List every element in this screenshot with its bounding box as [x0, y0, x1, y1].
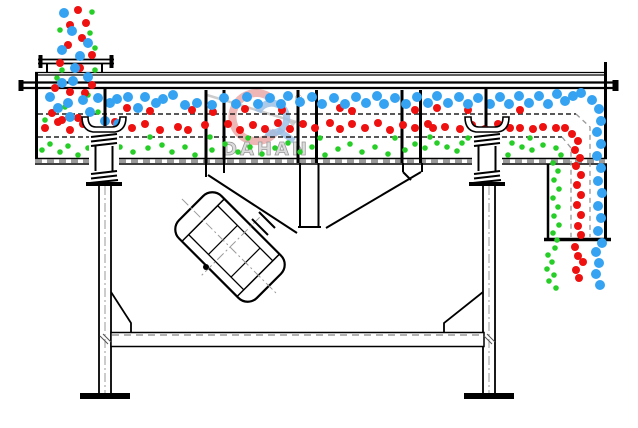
- hopper-right-diagonal: [326, 172, 421, 228]
- red-particle: [529, 125, 537, 133]
- blue-particle: [454, 92, 464, 102]
- blue-particle: [276, 99, 286, 109]
- green-particle: [552, 245, 558, 251]
- green-particle: [317, 135, 323, 141]
- blue-particle: [75, 51, 85, 61]
- cross-beam: [100, 333, 495, 347]
- red-particle: [201, 121, 209, 129]
- right-foot-pad: [464, 393, 514, 399]
- red-particle: [433, 104, 441, 112]
- blue-particle: [283, 91, 293, 101]
- green-particle: [554, 237, 560, 243]
- blue-particle: [265, 93, 275, 103]
- blue-particle: [423, 98, 433, 108]
- red-particle: [299, 120, 307, 128]
- green-particle: [385, 151, 391, 157]
- blue-particle: [504, 99, 514, 109]
- red-particle: [429, 124, 437, 132]
- green-particle: [57, 27, 63, 33]
- blue-particle: [133, 103, 143, 113]
- blue-particle: [351, 92, 361, 102]
- blue-particle: [432, 91, 442, 101]
- blue-particle: [596, 163, 606, 173]
- blue-particle: [596, 213, 606, 223]
- blue-particle: [595, 280, 605, 290]
- red-particle: [123, 104, 131, 112]
- blue-particle: [78, 95, 88, 105]
- green-particle: [245, 135, 251, 141]
- red-particle: [88, 81, 96, 89]
- green-particle: [57, 149, 63, 155]
- green-particle: [247, 144, 253, 150]
- green-particle: [465, 135, 471, 141]
- red-particle: [441, 123, 449, 131]
- green-particle: [87, 30, 93, 36]
- green-particle: [309, 144, 315, 150]
- red-particle: [146, 107, 154, 115]
- green-particle: [259, 151, 265, 157]
- red-particle: [577, 191, 585, 199]
- blue-particle: [70, 63, 80, 73]
- red-particle: [66, 88, 74, 96]
- green-particle: [551, 177, 557, 183]
- red-particle: [573, 181, 581, 189]
- green-particle: [553, 145, 559, 151]
- blue-particle: [534, 91, 544, 101]
- blue-particle: [83, 38, 93, 48]
- green-particle: [272, 145, 278, 151]
- blue-particle: [207, 100, 217, 110]
- green-particle: [75, 152, 81, 158]
- red-particle: [184, 126, 192, 134]
- green-particle: [427, 134, 433, 140]
- green-particle: [147, 134, 153, 140]
- blue-particle: [219, 93, 229, 103]
- blue-particle: [390, 93, 400, 103]
- left-leg: [80, 186, 130, 399]
- red-particle: [361, 124, 369, 132]
- red-channel-divider: [562, 137, 571, 237]
- green-particle: [422, 145, 428, 151]
- green-particle: [92, 45, 98, 51]
- diagram-canvas: ® DAHAN: [0, 0, 638, 428]
- green-particle: [322, 152, 328, 158]
- vibration-motor: [152, 169, 308, 325]
- green-particle: [527, 135, 533, 141]
- inlet-flange-right-plate: [110, 56, 113, 68]
- blue-particle: [140, 92, 150, 102]
- red-particle: [224, 120, 232, 128]
- red-particle: [336, 125, 344, 133]
- green-particle: [540, 142, 546, 148]
- red-particle: [456, 125, 464, 133]
- red-particle: [156, 126, 164, 134]
- green-particle: [519, 144, 525, 150]
- green-particle: [392, 135, 398, 141]
- red-particle: [539, 123, 547, 131]
- green-particle: [402, 147, 408, 153]
- red-particle: [174, 123, 182, 131]
- red-particle: [66, 126, 74, 134]
- left-gusset: [111, 292, 131, 333]
- green-particle: [39, 147, 45, 153]
- green-particle: [509, 140, 515, 146]
- green-particle: [92, 67, 98, 73]
- green-particle: [182, 144, 188, 150]
- blue-particle: [594, 258, 604, 268]
- blue-particle: [168, 90, 178, 100]
- green-particle: [454, 148, 460, 154]
- particles-layer: [39, 6, 607, 291]
- green-particle: [209, 147, 215, 153]
- blue-particle: [180, 100, 190, 110]
- green-particle: [556, 222, 562, 228]
- vibrating-screen-diagram: ® DAHAN: [0, 0, 638, 428]
- blue-particle: [379, 99, 389, 109]
- blue-particle: [93, 93, 103, 103]
- green-particle: [169, 149, 175, 155]
- green-particle: [558, 152, 564, 158]
- red-particle: [286, 125, 294, 133]
- green-particle: [556, 186, 562, 192]
- green-particle: [550, 230, 556, 236]
- green-particle: [89, 9, 95, 15]
- red-particle: [577, 171, 585, 179]
- green-particle: [412, 141, 418, 147]
- green-particle: [130, 149, 136, 155]
- blue-particle: [340, 99, 350, 109]
- blue-particle: [68, 76, 78, 86]
- red-particle: [88, 51, 96, 59]
- blue-particle: [596, 139, 606, 149]
- green-particle: [222, 141, 228, 147]
- green-particle: [207, 134, 213, 140]
- red-particle: [74, 6, 82, 14]
- blue-particle: [329, 93, 339, 103]
- red-particle: [41, 124, 49, 132]
- blue-particle: [307, 92, 317, 102]
- red-particle: [576, 154, 584, 162]
- red-particle: [326, 119, 334, 127]
- blue-particle: [594, 104, 604, 114]
- green-particle: [545, 252, 551, 258]
- blue-particle: [317, 99, 327, 109]
- blue-particle: [593, 201, 603, 211]
- red-particle: [516, 124, 524, 132]
- blue-particle: [361, 98, 371, 108]
- blue-particle: [83, 72, 93, 82]
- green-particle: [459, 140, 465, 146]
- blue-particle: [59, 8, 69, 18]
- red-particle: [236, 126, 244, 134]
- green-particle: [555, 168, 561, 174]
- blue-particle: [295, 97, 305, 107]
- blue-particle: [552, 89, 562, 99]
- green-particle: [551, 272, 557, 278]
- red-particle: [56, 59, 64, 67]
- blue-particle: [592, 151, 602, 161]
- red-particle: [571, 243, 579, 251]
- red-particle: [386, 126, 394, 134]
- green-particle: [145, 145, 151, 151]
- blue-particle: [412, 92, 422, 102]
- red-particle: [552, 124, 560, 132]
- blue-particle: [443, 98, 453, 108]
- blue-particle: [543, 99, 553, 109]
- blue-particle: [596, 116, 606, 126]
- blue-particle: [587, 95, 597, 105]
- green-particle: [372, 144, 378, 150]
- blue-particle: [242, 92, 252, 102]
- blue-particle: [372, 91, 382, 101]
- support-base: [80, 186, 514, 399]
- green-particle: [529, 147, 535, 153]
- green-particle: [505, 152, 511, 158]
- green-particle: [192, 152, 198, 158]
- green-particle: [550, 195, 556, 201]
- frame-rail-right-cap: [613, 81, 618, 91]
- blue-particle: [597, 188, 607, 198]
- red-particle: [572, 162, 580, 170]
- green-particle: [553, 285, 559, 291]
- red-particle: [249, 121, 257, 129]
- blue-particle: [57, 45, 67, 55]
- blue-particle: [65, 112, 75, 122]
- blue-particle: [192, 98, 202, 108]
- red-particle: [572, 266, 580, 274]
- green-particle: [159, 142, 165, 148]
- red-particle: [575, 274, 583, 282]
- red-particle: [141, 120, 149, 128]
- green-particle: [285, 140, 291, 146]
- left-foot-pad: [80, 393, 130, 399]
- red-particle: [573, 201, 581, 209]
- red-particle: [579, 258, 587, 266]
- green-particle: [434, 140, 440, 146]
- left-spring-base-plate: [86, 182, 122, 186]
- blue-particle: [45, 92, 55, 102]
- green-particle: [47, 141, 53, 147]
- blue-particle: [63, 98, 73, 108]
- blue-particle: [123, 92, 133, 102]
- blue-particle: [67, 26, 77, 36]
- frame-rail-left-cap: [19, 81, 23, 91]
- red-particle: [399, 121, 407, 129]
- red-particle: [261, 125, 269, 133]
- green-particle: [359, 149, 365, 155]
- blue-particle: [591, 269, 601, 279]
- blue-particle: [576, 88, 586, 98]
- green-particle: [335, 146, 341, 152]
- red-particle: [571, 146, 579, 154]
- red-particle: [311, 124, 319, 132]
- blue-particle: [112, 94, 122, 104]
- red-particle: [348, 107, 356, 115]
- green-particle: [42, 117, 48, 123]
- red-particle: [577, 211, 585, 219]
- blue-particle: [231, 99, 241, 109]
- green-particle: [347, 141, 353, 147]
- motor-bolt: [203, 264, 209, 270]
- green-particle: [65, 143, 71, 149]
- blue-particle: [514, 91, 524, 101]
- blue-particle: [593, 176, 603, 186]
- red-particle: [54, 118, 62, 126]
- blue-particle: [593, 226, 603, 236]
- red-particle: [516, 106, 524, 114]
- blue-particle: [57, 78, 67, 88]
- blue-particle: [591, 247, 601, 257]
- green-particle: [59, 67, 65, 73]
- green-particle: [95, 109, 101, 115]
- blue-particle: [597, 238, 607, 248]
- green-particle: [544, 266, 550, 272]
- red-particle: [128, 124, 136, 132]
- red-particle: [374, 119, 382, 127]
- blue-particle: [495, 92, 505, 102]
- blue-particle: [53, 103, 63, 113]
- red-particle: [82, 19, 90, 27]
- green-particle: [550, 160, 556, 166]
- red-particle: [574, 222, 582, 230]
- blue-particle: [463, 99, 473, 109]
- green-particle: [551, 213, 557, 219]
- red-particle: [411, 124, 419, 132]
- red-particle: [561, 124, 569, 132]
- right-spring-base-plate: [469, 182, 505, 186]
- right-gusset: [444, 292, 483, 333]
- blue-particle: [524, 98, 534, 108]
- blue-particle: [401, 99, 411, 109]
- red-particle: [411, 106, 419, 114]
- blue-particle: [253, 99, 263, 109]
- green-particle: [444, 144, 450, 150]
- blue-particle: [473, 93, 483, 103]
- green-particle: [555, 204, 561, 210]
- blue-particle: [158, 94, 168, 104]
- red-particle: [348, 120, 356, 128]
- red-particle: [568, 130, 576, 138]
- green-particle: [235, 149, 241, 155]
- red-particle: [574, 137, 582, 145]
- top-frame: [19, 73, 618, 91]
- blue-particle: [85, 107, 95, 117]
- blue-particle: [592, 127, 602, 137]
- red-particle: [274, 119, 282, 127]
- inlet-flange-left-plate: [39, 56, 42, 68]
- green-particle: [546, 278, 552, 284]
- gussets: [111, 292, 483, 333]
- red-particle: [241, 105, 249, 113]
- green-particle: [297, 149, 303, 155]
- right-leg: [464, 186, 514, 399]
- red-particle: [577, 231, 585, 239]
- green-particle: [549, 259, 555, 265]
